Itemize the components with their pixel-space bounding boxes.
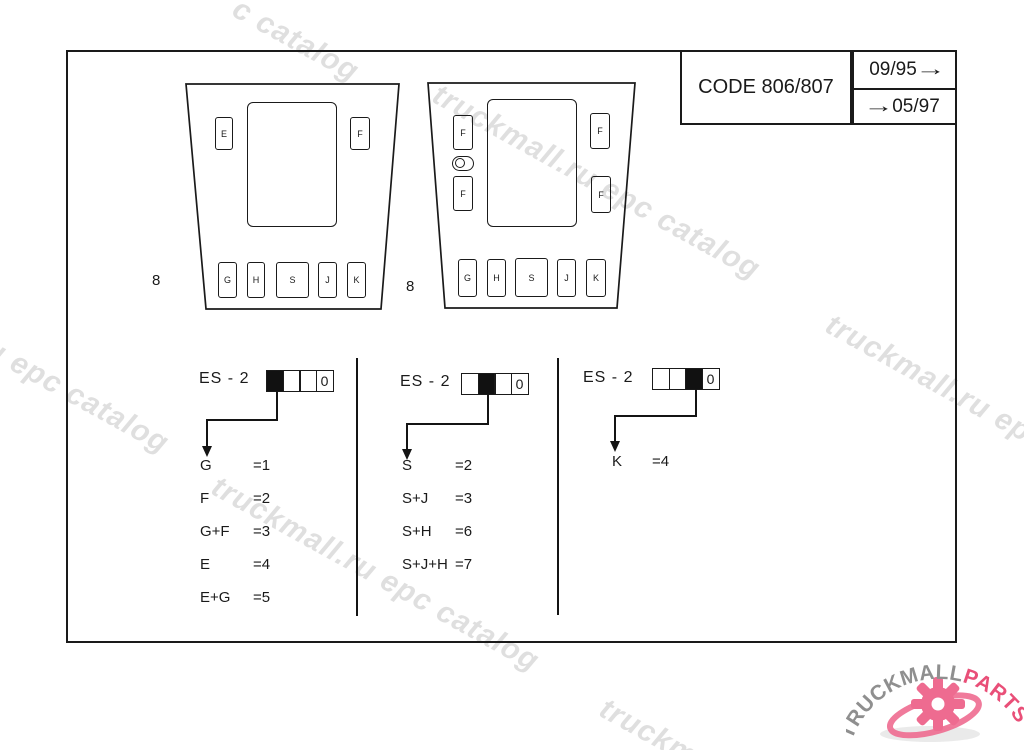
lamp-dot [455,158,465,168]
button-G-label: G [224,275,231,285]
button-E-label: E [221,129,227,139]
mapping-row: E=4 [200,555,270,575]
wire [614,415,616,441]
button-G-label: G [464,273,471,283]
button-F-right-top: F [590,113,610,149]
code-cell [478,373,496,395]
code-cell-zero: 0 [316,370,334,392]
button-F-left-top: F [453,115,473,150]
button-K: K [586,259,606,297]
button-H: H [487,259,506,297]
mapping-row: S+J=3 [402,489,472,509]
code-cell [266,370,284,392]
mapping-keys: S+H [402,522,455,542]
mapping-keys: K [612,452,652,472]
mapping-keys: S+J [402,489,455,509]
code-cell [299,370,317,392]
mapping-keys: E [200,555,253,575]
code-cell [461,373,479,395]
button-F-label: F [357,129,363,139]
wire [276,391,278,420]
code-cell [669,368,687,390]
es2-mapping-list-1: G=1 F=2 G+F=3 E=4 E+G=5 [200,456,270,621]
wire [406,423,408,449]
button-K: K [347,262,366,298]
button-S-label: S [289,275,295,285]
section-divider [356,358,358,616]
button-G: G [458,259,477,297]
button-E: E [215,117,233,150]
mapping-row: S=2 [402,456,472,476]
mapping-keys: E+G [200,588,253,608]
es2-mapping-list-2: S=2 S+J=3 S+H=6 S+J+H=7 [402,456,472,588]
validity-from: 09/95 → [854,52,955,90]
mapping-value: =7 [455,555,472,575]
code-cell [652,368,670,390]
arrow-right-icon: → [915,59,945,81]
code-box: CODE 806/807 [680,50,852,125]
catalog-page: c catalog truckmall.ru epc catalog ll.ru… [0,0,1024,750]
button-label: F [597,126,603,136]
code-cell [494,373,512,395]
button-label: F [460,128,466,138]
button-F-left-bottom: F [453,176,473,211]
es2-label-2: ES - 2 [400,373,450,391]
mapping-row: S+H=6 [402,522,472,542]
wire [206,419,278,421]
arrow-right-icon: → [864,96,894,118]
button-J: J [557,259,576,297]
button-F-right-bottom: F [591,176,611,213]
mapping-value: =1 [253,456,270,476]
mapping-row: G=1 [200,456,270,476]
code-cell [685,368,703,390]
mapping-value: =6 [455,522,472,542]
code-cell [283,370,301,392]
button-F: F [350,117,370,150]
wire [406,423,489,425]
mapping-value: =3 [455,489,472,509]
arrow-down-icon [610,441,620,452]
ref-number-panel-1: 8 [152,272,160,289]
ref-number-panel-2: 8 [406,278,414,295]
button-label: F [598,190,604,200]
indicator-lamp [452,156,474,171]
button-H-label: H [253,275,260,285]
button-G: G [218,262,237,298]
mapping-keys: G+F [200,522,253,542]
display-screen [487,99,577,227]
mapping-row: S+J+H=7 [402,555,472,575]
mapping-value: =4 [652,452,669,472]
mapping-row: F=2 [200,489,270,509]
wire [487,394,489,424]
console-panel-2: F F F F G H S J K [405,70,655,315]
button-H-label: H [493,273,500,283]
mapping-value: =2 [253,489,270,509]
button-K-label: K [353,275,359,285]
validity-box: 09/95 → → 05/97 [852,50,957,125]
wire [614,415,697,417]
button-J-label: J [325,275,330,285]
mapping-value: =4 [253,555,270,575]
es2-mapping-list-3: K=4 [612,452,669,485]
es2-label-3: ES - 2 [583,369,633,387]
validity-to: → 05/97 [854,90,955,126]
mapping-keys: S [402,456,455,476]
console-panel-1: E F G H S J K [150,70,410,315]
truckmallparts-logo: TRUCKMALLPARTS [846,642,1024,750]
button-H: H [247,262,265,298]
mapping-keys: F [200,489,253,509]
mapping-value: =3 [253,522,270,542]
validity-from-value: 09/95 [869,59,917,81]
button-S: S [515,258,548,297]
wire [695,389,697,417]
mapping-value: =5 [253,588,270,608]
display-screen [247,102,337,227]
mapping-row: G+F=3 [200,522,270,542]
section-divider [557,358,559,615]
button-label: F [460,189,466,199]
mapping-keys: S+J+H [402,555,455,575]
mapping-row: K=4 [612,452,669,472]
code-cell-zero: 0 [702,368,720,390]
validity-to-value: 05/97 [892,96,940,118]
code-cell-zero: 0 [511,373,529,395]
es2-code-cells-3: 0 [652,368,720,390]
mapping-row: E+G=5 [200,588,270,608]
button-J: J [318,262,337,298]
mapping-value: =2 [455,456,472,476]
button-S-label: S [528,273,534,283]
mapping-keys: G [200,456,253,476]
es2-code-cells-1: 0 [266,370,334,392]
button-S: S [276,262,309,298]
es2-label-1: ES - 2 [199,370,249,388]
wire [206,419,208,446]
es2-code-cells-2: 0 [461,373,529,395]
button-K-label: K [593,273,599,283]
code-label: CODE 806/807 [698,76,834,99]
button-J-label: J [564,273,569,283]
